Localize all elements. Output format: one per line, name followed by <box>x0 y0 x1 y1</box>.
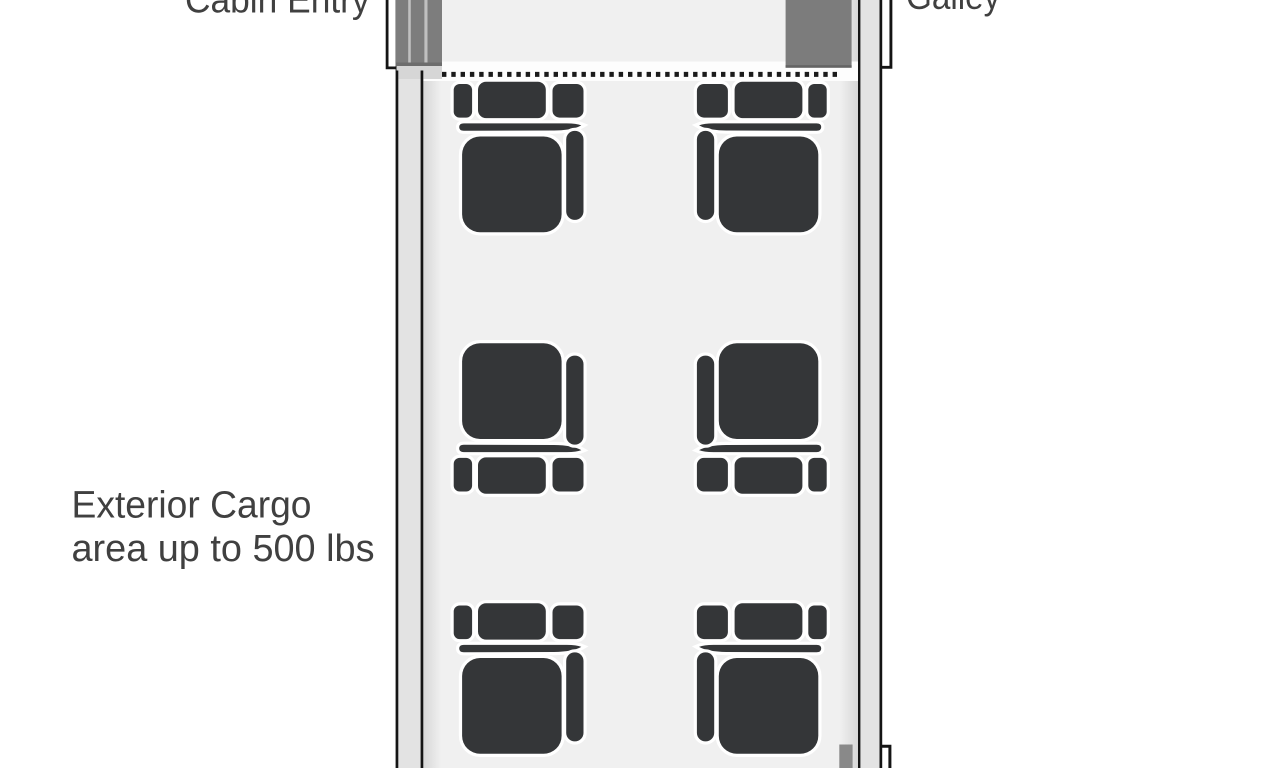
svg-text:Galley: Galley <box>906 0 1001 17</box>
svg-text:area up to 500 lbs: area up to 500 lbs <box>72 528 375 570</box>
svg-text:Cabin Entry: Cabin Entry <box>185 0 370 21</box>
svg-text:Exterior Cargo: Exterior Cargo <box>72 485 312 527</box>
